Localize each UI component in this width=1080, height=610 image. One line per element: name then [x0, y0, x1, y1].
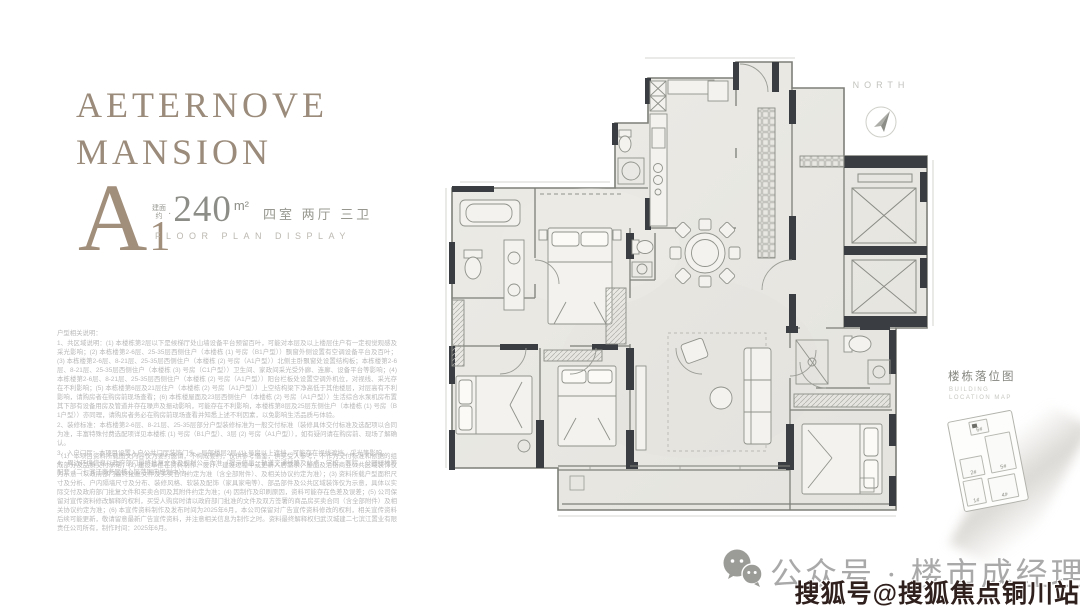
building-1-label: 1# [973, 497, 980, 504]
location-map-subtitle-1: BUILDING [949, 386, 1012, 394]
brand-title: AETERNOVE MANSION [76, 82, 328, 176]
area-prefix-top: 建面 [152, 205, 166, 213]
area-prefix: 建面 约 [152, 205, 166, 221]
compass: NORTH [838, 80, 924, 147]
disclaimer-item-2: 2、装修标准：本栋楼第2-6层、8-21层、25-35层部分户型装修标准为一般交… [57, 421, 397, 448]
area-value: 240 [173, 193, 232, 227]
plan-subtitle: FLOOR PLAN DISPLAY [155, 231, 351, 241]
watermark-text: 搜狐号@搜狐焦点铜川站 [795, 574, 1080, 610]
disclaimer-item-1: 1、共区域说明：(1) 本楼栋第2层以下是候梯厅处山墙设备平台预留百叶，可能对本… [57, 339, 397, 420]
unit-spec: 建面 约 · 240 m² 四室 两厅 三卫 [152, 193, 372, 227]
disclaimer-block-2: （1）本项目资料所载图文内容仅为要约邀请，不构成要约，仅供参考借鉴，供买受人参考… [57, 452, 397, 534]
area-prefix-bottom: 约 [156, 213, 163, 221]
building-6-label: 6# [976, 427, 983, 434]
page: { "brand": { "line1": "AETERNOVE", "line… [0, 0, 1080, 607]
location-map-title: 楼栋落位图 [948, 368, 1016, 384]
unit-letter: A [78, 178, 147, 258]
building-2-label: 2# [970, 469, 977, 476]
disclaimer-paragraph-2: （1）本项目资料所载图文内容仅为要约邀请，不构成要约，仅供参考借鉴，供买受人参考… [57, 452, 397, 533]
dining-area [670, 219, 740, 287]
disclaimer-intro: 户型相关说明： [57, 329, 397, 338]
building-5-label: 5# [1000, 464, 1007, 471]
building-4-label: 4# [1001, 492, 1008, 499]
location-map-subtitle-2: LOCATION MAP [949, 394, 1012, 402]
building-2: 2# [959, 455, 985, 479]
north-arrow-icon [861, 102, 901, 142]
room-layout: 四室 两厅 三卫 [263, 204, 372, 223]
building-6: 6# [968, 418, 989, 435]
area-dot: · [168, 208, 171, 219]
building-1: 1# [962, 477, 987, 506]
compass-label: NORTH [838, 80, 924, 90]
area-unit: m² [234, 198, 249, 213]
wechat-icon [720, 548, 766, 590]
brand-line1: AETERNOVE [76, 82, 328, 129]
building-4: 4# [987, 473, 1019, 502]
location-map-subtitle: BUILDING LOCATION MAP [949, 386, 1012, 402]
building-5: 5# [984, 431, 1017, 473]
